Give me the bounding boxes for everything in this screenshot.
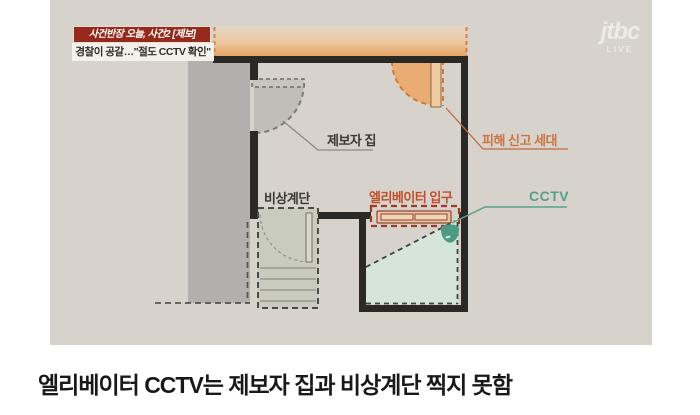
wall-lobby-bottom [359, 305, 468, 312]
wall-bottom-mid [318, 212, 371, 219]
channel-logo: jtbc LIVE [594, 20, 646, 54]
stair-door-leaf [306, 213, 312, 262]
tv-screenshot: 사건반장 오늘, 사건2 [제보] 경찰이 공갈…"절도 CCTV 확인" jt… [50, 0, 652, 345]
label-emergency-stairs: 비상계단 [264, 188, 310, 207]
label-elevator-entrance: 엘리베이터 입구 [369, 187, 452, 206]
victim-door-leaf [431, 59, 441, 107]
label-informant-home: 제보자 집 [327, 130, 376, 149]
informant-door-swing-fill [254, 83, 304, 133]
jtbc-logo: jtbc [594, 20, 646, 44]
label-cctv: CCTV [529, 188, 569, 204]
post-page: 사건반장 오늘, 사건2 [제보] 경찰이 공갈…"절도 CCTV 확인" jt… [0, 0, 700, 415]
live-label: LIVE [594, 44, 646, 54]
wall-bottom-left [250, 212, 258, 219]
informant-unit-area [188, 60, 250, 303]
label-victim-unit: 피해 신고 세대 [482, 130, 557, 149]
elevator-door-panel-right [415, 214, 447, 220]
post-caption: 엘리베이터 CCTV는 제보자 집과 비상계단 찍지 못함 [38, 366, 512, 400]
badge-title: 사건반장 오늘, 사건2 [제보] [73, 26, 211, 43]
informant-door-leaf [252, 79, 304, 87]
wall-left-lower [250, 131, 258, 219]
wall-right [461, 56, 468, 312]
wall-lobby-left [359, 219, 366, 312]
badge-subtitle: 경찰이 공갈…"절도 CCTV 확인" [72, 43, 214, 61]
cctv-label-connector [452, 207, 567, 223]
wall-left-upper [250, 56, 258, 80]
elevator-door-panel-left [381, 214, 413, 220]
victim-corridor-area [214, 26, 467, 57]
